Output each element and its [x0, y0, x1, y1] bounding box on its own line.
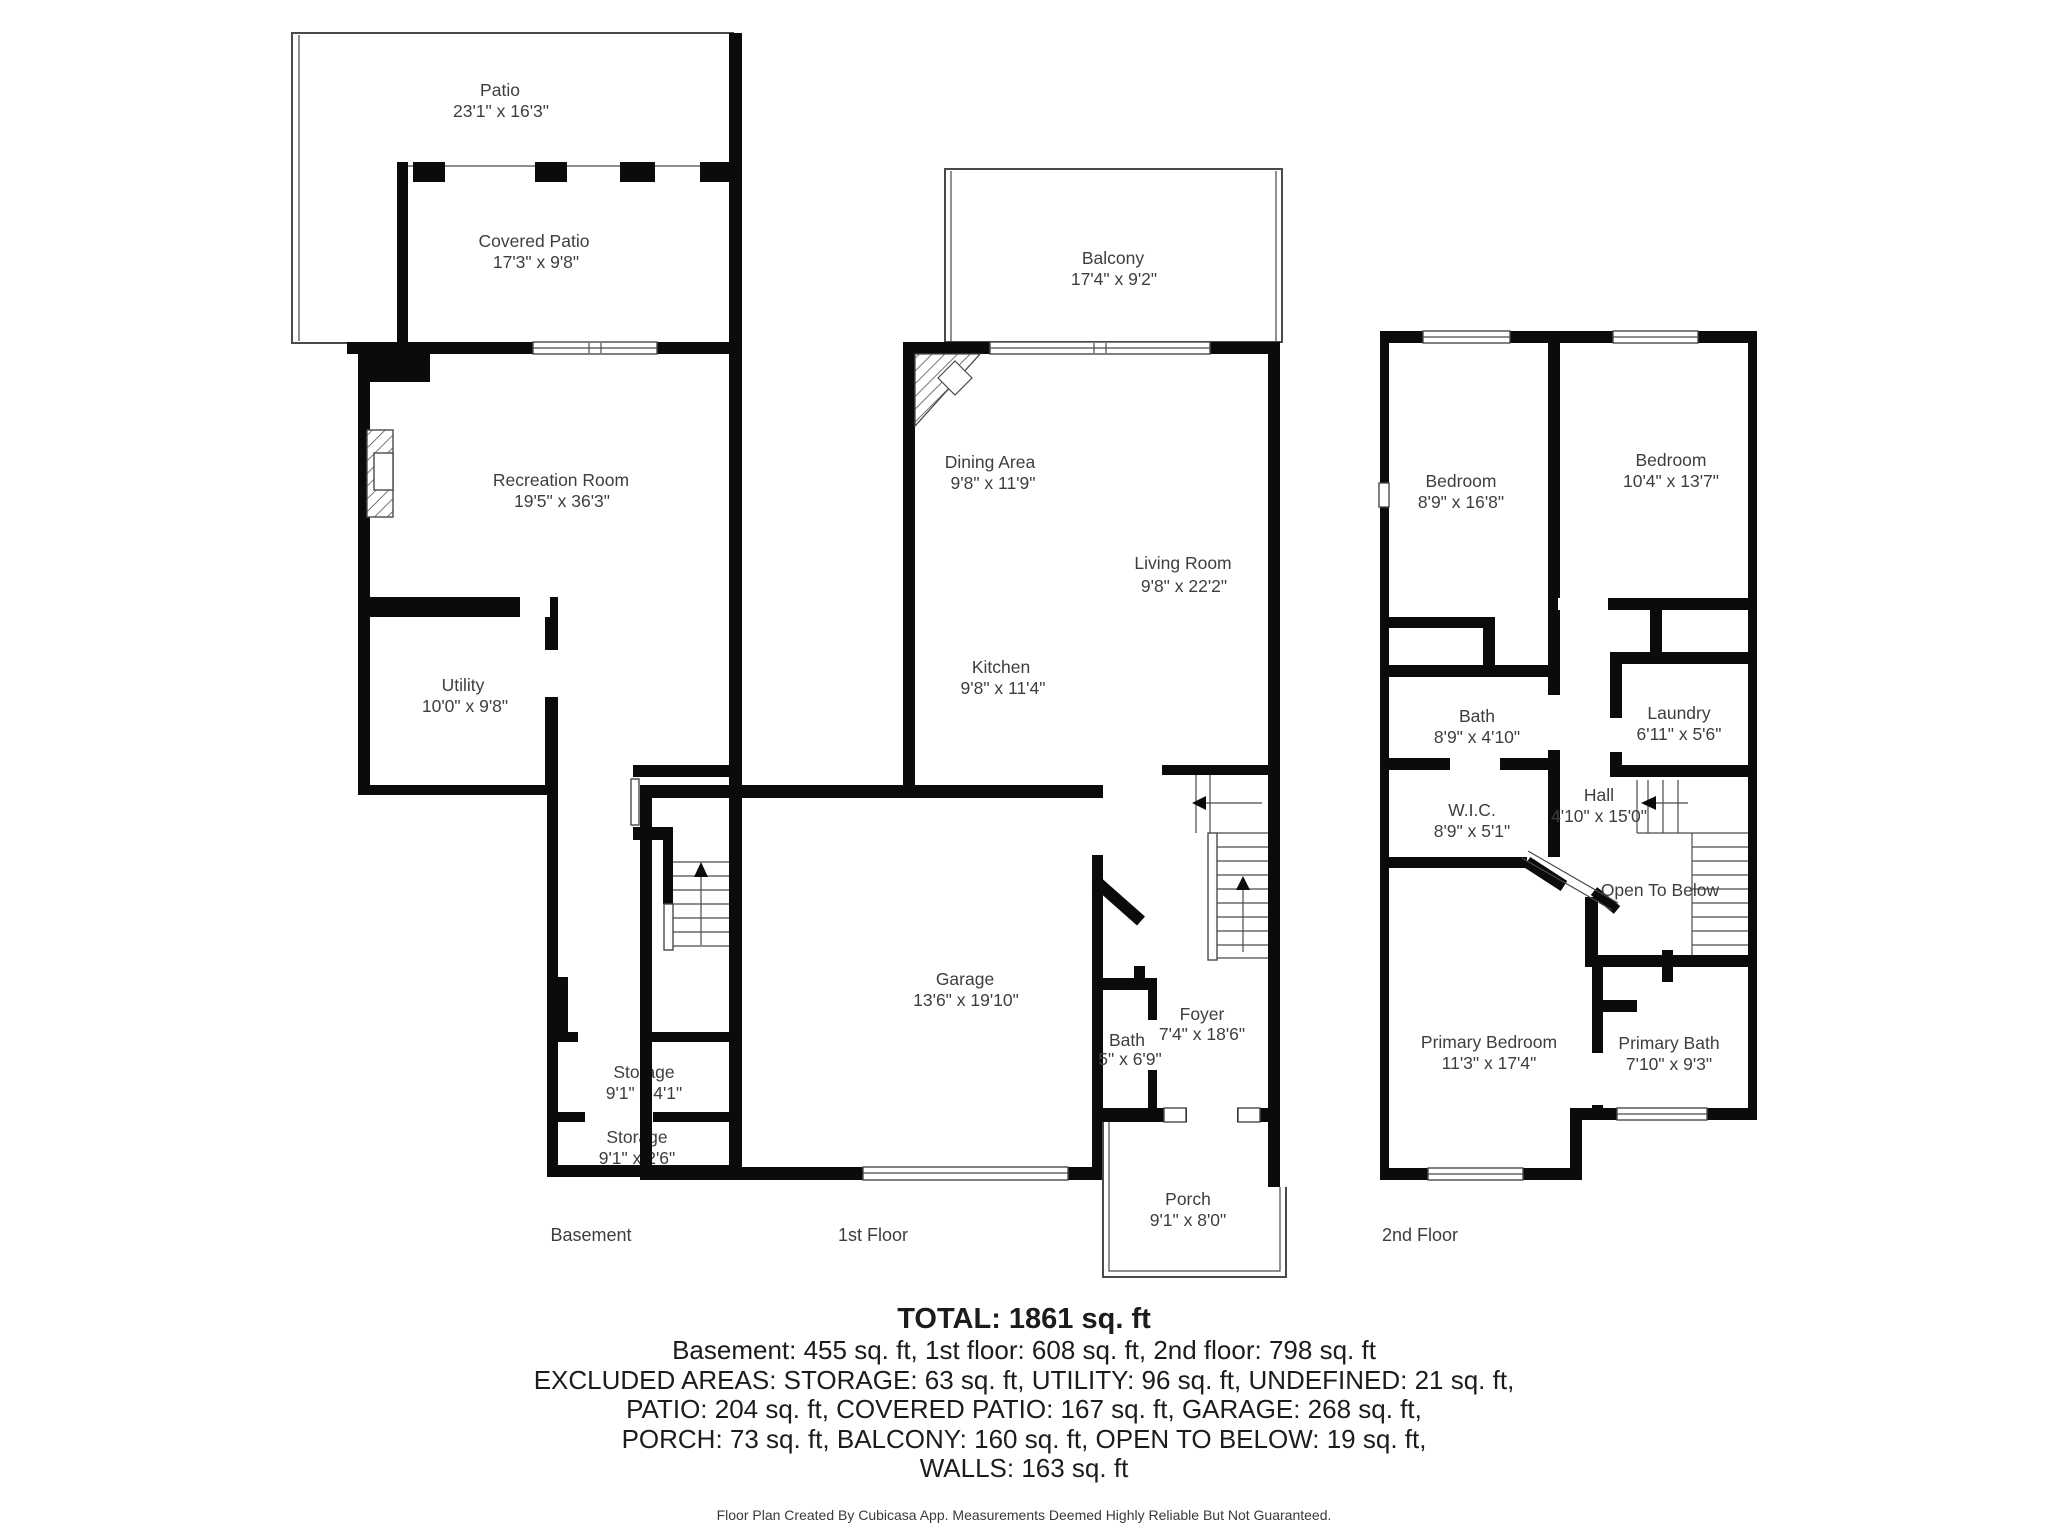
floor-plan-page: Patio 23'1" x 16'3" Covered Patio 17'3" … — [0, 0, 2048, 1536]
room-dims-laundry: 6'11" x 5'6" — [1637, 724, 1722, 744]
room-label-patio: Patio — [480, 80, 520, 100]
room-dims-utility: 10'0" x 9'8" — [422, 696, 508, 716]
room-label-utility: Utility — [442, 675, 485, 695]
first-floor-stairs — [1192, 775, 1268, 960]
room-label-primary-bath: Primary Bath — [1618, 1033, 1719, 1053]
disclaimer-text: Floor Plan Created By Cubicasa App. Meas… — [0, 1507, 2048, 1523]
room-dims-primary-bedroom: 11'3" x 17'4" — [1442, 1053, 1537, 1073]
room-label-kitchen: Kitchen — [972, 657, 1030, 677]
basement-plan: Patio 23'1" x 16'3" Covered Patio 17'3" … — [292, 33, 742, 1245]
basement-slider-door — [533, 342, 657, 354]
room-label-living-room: Living Room — [1134, 553, 1231, 573]
basement-stairs — [673, 862, 729, 946]
room-label-primary-bedroom: Primary Bedroom — [1421, 1032, 1557, 1052]
room-dims-patio: 23'1" x 16'3" — [453, 101, 549, 121]
room-label-foyer: Foyer — [1180, 1004, 1225, 1024]
garage-door — [863, 1167, 1068, 1180]
room-dims-wic: 8'9" x 5'1" — [1434, 821, 1511, 841]
room-dims-bedroom-2: 10'4" x 13'7" — [1623, 471, 1719, 491]
basement-stair-rail — [664, 904, 673, 950]
room-dims-foyer: 7'4" x 18'6" — [1159, 1024, 1245, 1044]
summary-line: PATIO: 204 sq. ft, COVERED PATIO: 167 sq… — [0, 1395, 2048, 1425]
floor-label-second: 2nd Floor — [1382, 1225, 1458, 1245]
basement-walls — [347, 33, 742, 1177]
room-dims-garage: 13'6" x 19'10" — [913, 990, 1019, 1010]
room-label-garage: Garage — [936, 969, 994, 989]
room-dims-living-room: 9'8" x 22'2" — [1141, 576, 1227, 596]
floor-label-first: 1st Floor — [838, 1225, 908, 1245]
room-label-laundry: Laundry — [1647, 703, 1710, 723]
summary-line: WALLS: 163 sq. ft — [0, 1454, 2048, 1484]
second-floor-plan: Bedroom 8'9" x 16'8" Bedroom 10'4" x 13'… — [1379, 331, 1757, 1245]
balcony-slider-door — [990, 342, 1210, 354]
room-label-storage-2: Storage — [606, 1127, 667, 1147]
floor-label-basement: Basement — [550, 1225, 631, 1245]
room-dims-kitchen: 9'8" x 11'4" — [961, 678, 1046, 698]
stairs-up-arrow — [694, 862, 708, 877]
room-dims-primary-bath: 7'10" x 9'3" — [1626, 1054, 1712, 1074]
room-dims-porch: 9'1" x 8'0" — [1150, 1210, 1227, 1230]
room-label-open-to-below: Open To Below — [1601, 880, 1720, 900]
room-dims-balcony: 17'4" x 9'2" — [1071, 269, 1157, 289]
room-label-bath-2: Bath — [1459, 706, 1495, 726]
stairs-up-arrow — [1236, 876, 1250, 890]
area-summary: TOTAL: 1861 sq. ft Basement: 455 sq. ft,… — [0, 1303, 2048, 1484]
room-label-dining-area: Dining Area — [945, 452, 1036, 472]
summary-line: Basement: 455 sq. ft, 1st floor: 608 sq.… — [0, 1336, 2048, 1366]
front-sidelight-window — [1238, 1108, 1260, 1122]
room-label-bedroom-2: Bedroom — [1635, 450, 1706, 470]
basement-stair-door — [631, 779, 639, 825]
room-label-recreation-room: Recreation Room — [493, 470, 629, 490]
room-label-porch: Porch — [1165, 1189, 1211, 1209]
room-dims-bedroom-1: 8'9" x 16'8" — [1418, 492, 1504, 512]
dining-corner-hatch — [915, 354, 980, 426]
stairs-left-arrow — [1192, 796, 1206, 810]
fireplace — [367, 430, 393, 517]
room-dims-recreation-room: 19'5" x 36'3" — [514, 491, 610, 511]
room-dims-covered-patio: 17'3" x 9'8" — [493, 252, 579, 272]
room-dims-hall: 4'10" x 15'0" — [1551, 806, 1647, 826]
room-label-balcony: Balcony — [1082, 248, 1145, 268]
room-dims-bath-2: 8'9" x 4'10" — [1434, 727, 1520, 747]
summary-line: PORCH: 73 sq. ft, BALCONY: 160 sq. ft, O… — [0, 1425, 2048, 1455]
room-label-bedroom-1: Bedroom — [1425, 471, 1496, 491]
room-label-bath: Bath — [1109, 1030, 1145, 1050]
room-label-covered-patio: Covered Patio — [479, 231, 590, 251]
front-sidelight-window — [1164, 1108, 1186, 1122]
room-dims-dining-area: 9'8" x 11'9" — [951, 473, 1036, 493]
total-area: TOTAL: 1861 sq. ft — [0, 1303, 2048, 1336]
room-label-hall: Hall — [1584, 785, 1614, 805]
room-dims-storage-2: 9'1" x 2'6" — [599, 1148, 676, 1168]
room-dims-bath: 5" x 6'9" — [1098, 1049, 1161, 1069]
room-label-wic: W.I.C. — [1448, 800, 1496, 820]
summary-line: EXCLUDED AREAS: STORAGE: 63 sq. ft, UTIL… — [0, 1366, 2048, 1396]
